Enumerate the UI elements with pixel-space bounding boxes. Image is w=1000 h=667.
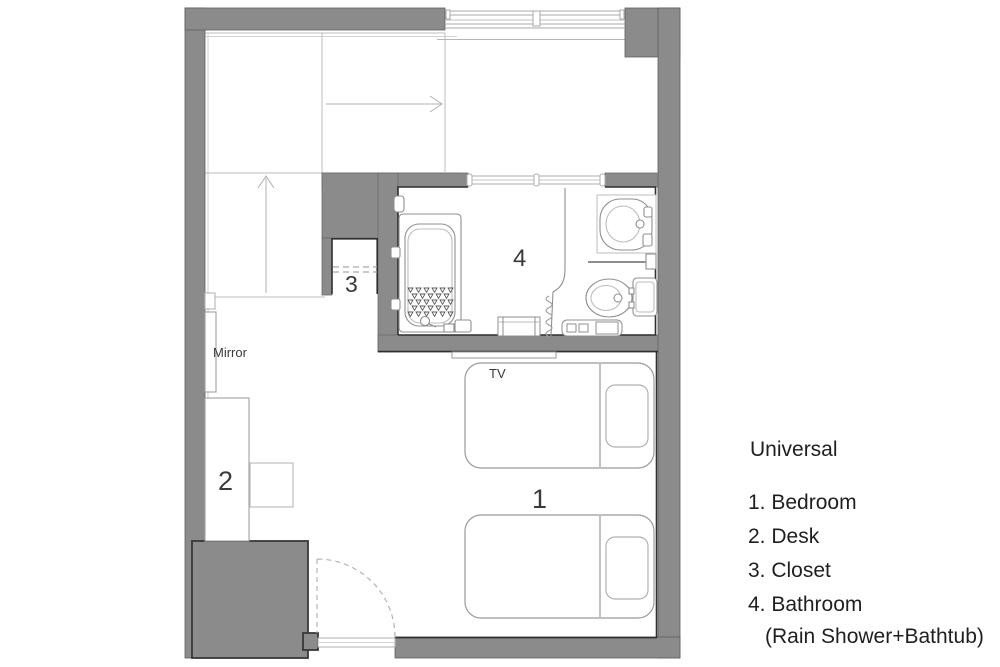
toilet-flush	[614, 294, 622, 302]
legend: Universal 1. Bedroom 2. Desk 3. Closet 4…	[748, 438, 993, 652]
slide-arrow-up-icon	[258, 176, 274, 293]
shower-control-icon	[394, 196, 404, 212]
bathtub	[391, 196, 471, 332]
toilet-hinge	[629, 302, 634, 308]
door-track-end	[467, 174, 472, 186]
bathtub-drain	[421, 317, 430, 326]
legend-item-closet: 3. Closet	[748, 554, 993, 588]
door-pull	[534, 174, 539, 186]
window-handle	[533, 11, 540, 26]
sink	[588, 195, 656, 269]
slide-arrow-right-icon	[326, 96, 442, 112]
desk-number-label: 2	[218, 466, 233, 496]
entry-wall-block	[192, 541, 318, 658]
legend-item-desk: 2. Desk	[748, 520, 993, 554]
legend-item-bedroom: 1. Bedroom	[748, 486, 993, 520]
entry-block	[192, 541, 308, 658]
toilet-hinge	[629, 288, 634, 294]
bathroom-bottom-wall	[378, 335, 658, 352]
window-frame-end	[446, 10, 450, 19]
legend-bathroom-note: (Rain Shower+Bathtub)	[748, 622, 993, 652]
bathroom-sliding-door	[467, 174, 605, 186]
bath-scale	[596, 322, 618, 334]
partition-line	[551, 188, 565, 336]
floor-plan-page: 1 2 3 4 Mirror TV Universal 1. Bedroom 2…	[0, 0, 1000, 667]
slipper	[567, 324, 576, 332]
chair	[250, 463, 293, 507]
tv-shelf	[452, 352, 556, 358]
sink-fitting	[643, 234, 652, 246]
pillow	[606, 385, 648, 447]
door-jamb	[303, 633, 318, 650]
bath-mat-and-slippers	[562, 320, 622, 336]
toilet	[586, 278, 657, 317]
window	[445, 10, 625, 28]
bath-tap-icon	[391, 247, 400, 258]
bath-step-hardware	[455, 320, 471, 332]
sink-fitting	[644, 207, 652, 217]
closet-number-label: 3	[345, 271, 358, 297]
slipper	[579, 324, 588, 332]
door-track-end	[600, 174, 605, 186]
wall-switch	[205, 293, 215, 309]
pillow	[606, 537, 648, 599]
bedroom-number-label: 1	[532, 484, 547, 514]
toilet-tank-lid	[636, 282, 654, 312]
top-wall	[185, 8, 445, 30]
tv-label: TV	[489, 366, 506, 381]
shower-partition	[546, 188, 565, 337]
bathroom-top-wall-right	[605, 173, 658, 187]
bathroom-number-label: 4	[513, 245, 526, 272]
closet-niche-left-arm	[322, 238, 332, 295]
shower-bench	[498, 317, 540, 336]
bottom-wall	[395, 637, 680, 658]
legend-item-bathroom: 4. Bathroom	[748, 588, 993, 622]
bath-tap-icon	[391, 299, 400, 310]
towel-bar-bracket	[646, 254, 656, 269]
legend-title: Universal	[750, 438, 993, 461]
right-wall	[658, 8, 680, 658]
mirror-label: Mirror	[213, 345, 248, 360]
bed-2	[465, 515, 654, 618]
bath-step-hardware	[444, 324, 454, 332]
sink-bowl	[606, 206, 640, 242]
sink-faucet	[636, 220, 644, 228]
desk-area	[205, 293, 293, 541]
bench-top	[498, 317, 540, 336]
window-frame-end	[620, 10, 624, 19]
door-swing-arc	[317, 559, 395, 637]
entrance-door	[317, 559, 395, 647]
